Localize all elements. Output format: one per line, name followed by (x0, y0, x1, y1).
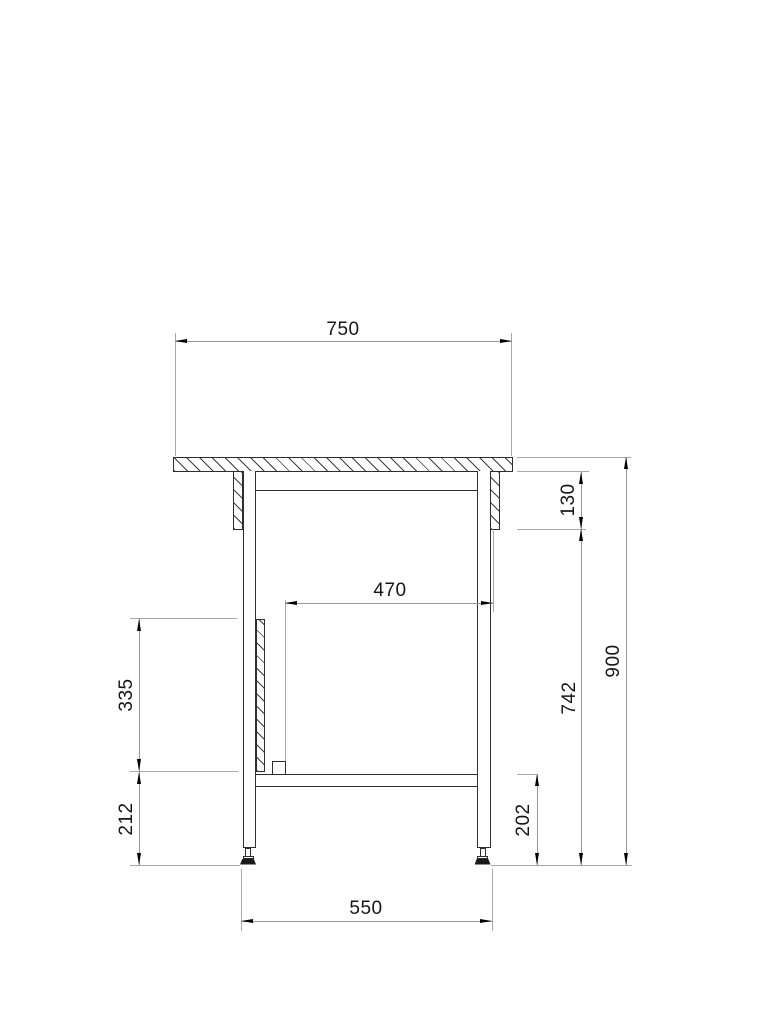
arrowhead-right (480, 919, 492, 923)
arrowhead-left (241, 919, 253, 923)
dimension-550-foot-span: 550 (0, 0, 762, 1024)
extension-line (492, 869, 493, 931)
drawing-sheet: 750 470 130 742 900 (0, 0, 762, 1024)
dimension-line (241, 921, 492, 922)
dim-label-550: 550 (349, 898, 382, 920)
